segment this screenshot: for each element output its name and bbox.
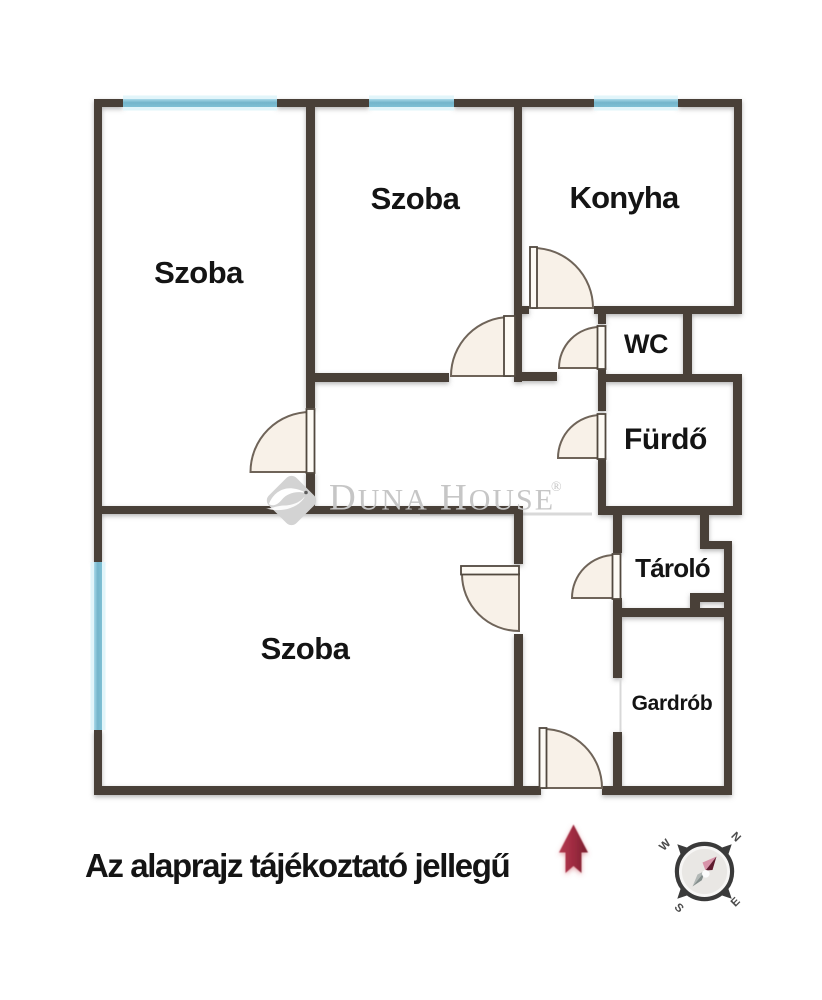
svg-text:Szoba: Szoba [371,181,461,216]
svg-text:N: N [728,830,742,844]
svg-text:Tároló: Tároló [635,553,710,583]
svg-text:Gardrób: Gardrób [632,692,713,715]
svg-text:Az alaprajz tájékoztató jelleg: Az alaprajz tájékoztató jellegű [85,847,509,884]
svg-text:Szoba: Szoba [261,631,351,666]
svg-text:S: S [672,901,686,915]
svg-text:WC: WC [624,329,668,359]
svg-text:DUNA HOUSE: DUNA HOUSE [329,478,555,519]
svg-text:Fürdő: Fürdő [624,423,707,456]
svg-text:W: W [657,837,673,853]
svg-text:Szoba: Szoba [154,255,244,290]
svg-text:Konyha: Konyha [570,180,680,215]
svg-text:®: ® [551,480,562,495]
